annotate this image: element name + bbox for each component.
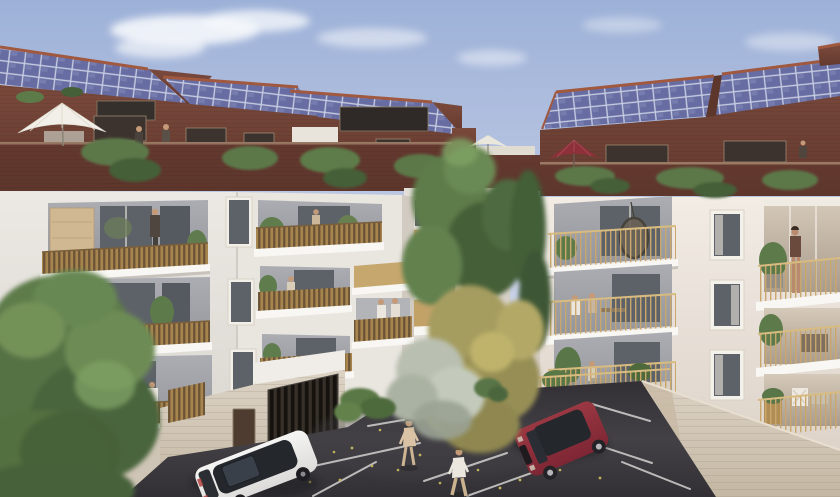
cloud [200,10,310,32]
person-head [589,361,595,367]
window [228,279,254,325]
window-pane [233,352,253,390]
person-head [149,382,155,388]
rooftop-room [292,127,338,143]
window [710,350,744,400]
window [724,141,786,162]
balcony-row [254,200,384,257]
terrace-glazing [340,107,428,131]
curtain [715,355,723,395]
window-pane [231,282,251,322]
balcony-row [756,308,840,377]
balcony-row [546,264,678,345]
window [226,197,252,247]
render-canvas [0,0,840,497]
person-roof-terrace [162,124,170,142]
person-head [589,293,595,299]
curtain [715,215,723,255]
cloud [582,17,662,33]
person-head [801,141,806,146]
window-pane [229,200,249,244]
person-body [162,130,170,142]
cloud [457,50,527,66]
terrace-furniture [44,131,84,142]
terrace-plant [61,87,83,97]
terrace-plant [16,91,44,103]
cloud [115,38,205,58]
person-body [403,427,416,447]
parapet-coping [540,162,840,165]
glass-head [764,200,840,206]
balcony-row [756,200,840,311]
person-body [452,457,466,478]
cloud [317,28,427,48]
interior-plant [104,217,132,239]
person-body [150,215,160,237]
person-head [288,276,294,282]
person-body [799,146,807,158]
person-head [392,298,398,304]
person-head [136,126,142,132]
architectural-render [0,0,840,497]
person-head [378,299,384,305]
person-head [152,209,158,215]
person-body [790,236,801,257]
person-head [313,209,319,215]
curtain [731,285,739,325]
window-column [226,197,256,393]
window [710,210,744,260]
window [710,280,744,330]
person-head [163,124,169,130]
